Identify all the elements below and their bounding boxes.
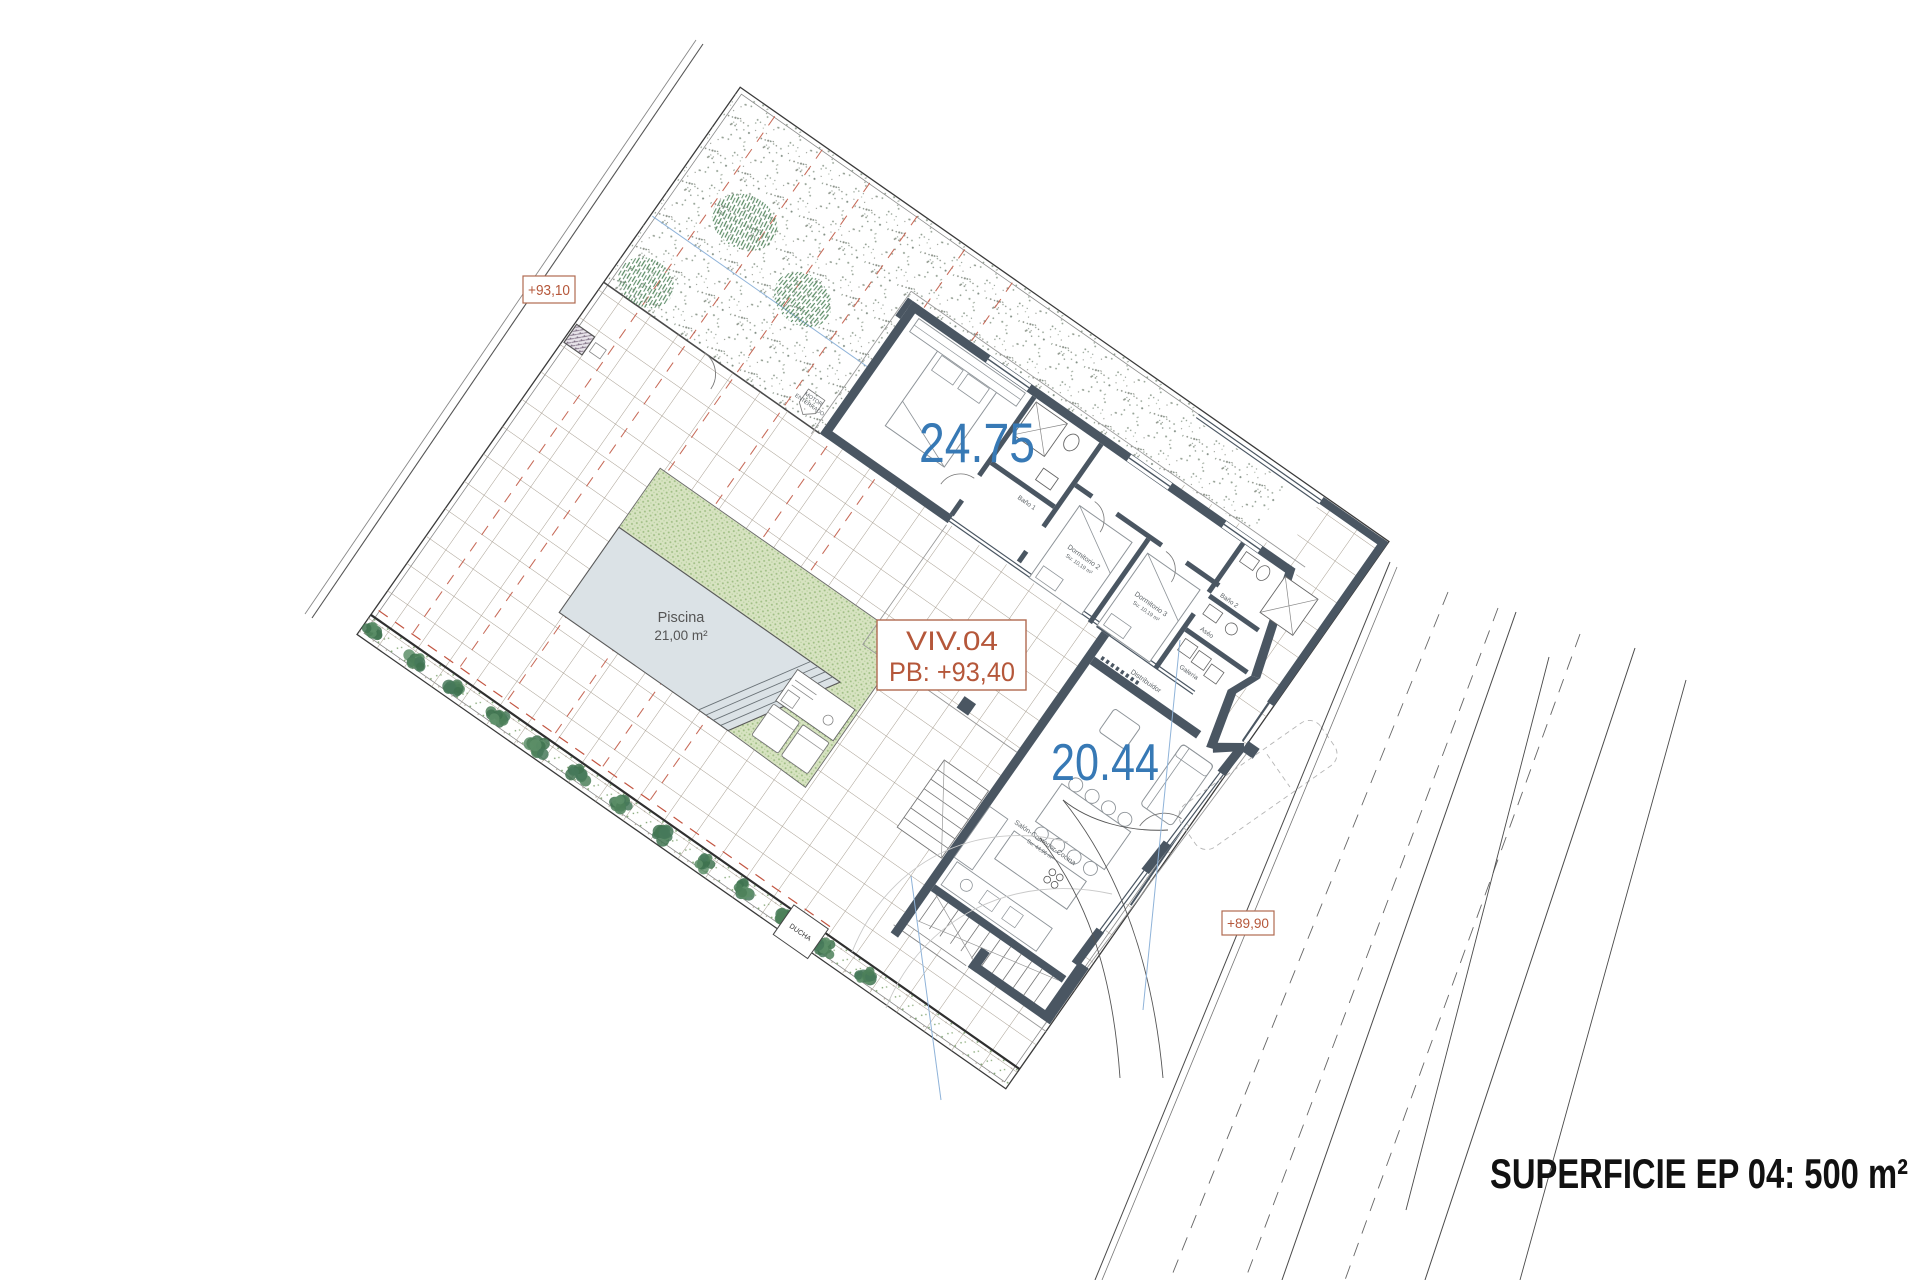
svg-text:20.44: 20.44	[1051, 734, 1159, 792]
svg-text:24.75: 24.75	[919, 411, 1035, 474]
svg-text:Piscina: Piscina	[658, 610, 706, 626]
svg-text:PB: +93,40: PB: +93,40	[889, 657, 1015, 687]
svg-text:VIV.04: VIV.04	[906, 626, 998, 656]
svg-text:21,00 m²: 21,00 m²	[654, 628, 708, 643]
svg-text:+89,90: +89,90	[1227, 915, 1269, 931]
svg-text:+93,10: +93,10	[528, 283, 570, 299]
svg-text:SUPERFICIE EP 04: 500 m²: SUPERFICIE EP 04: 500 m²	[1490, 1150, 1908, 1197]
